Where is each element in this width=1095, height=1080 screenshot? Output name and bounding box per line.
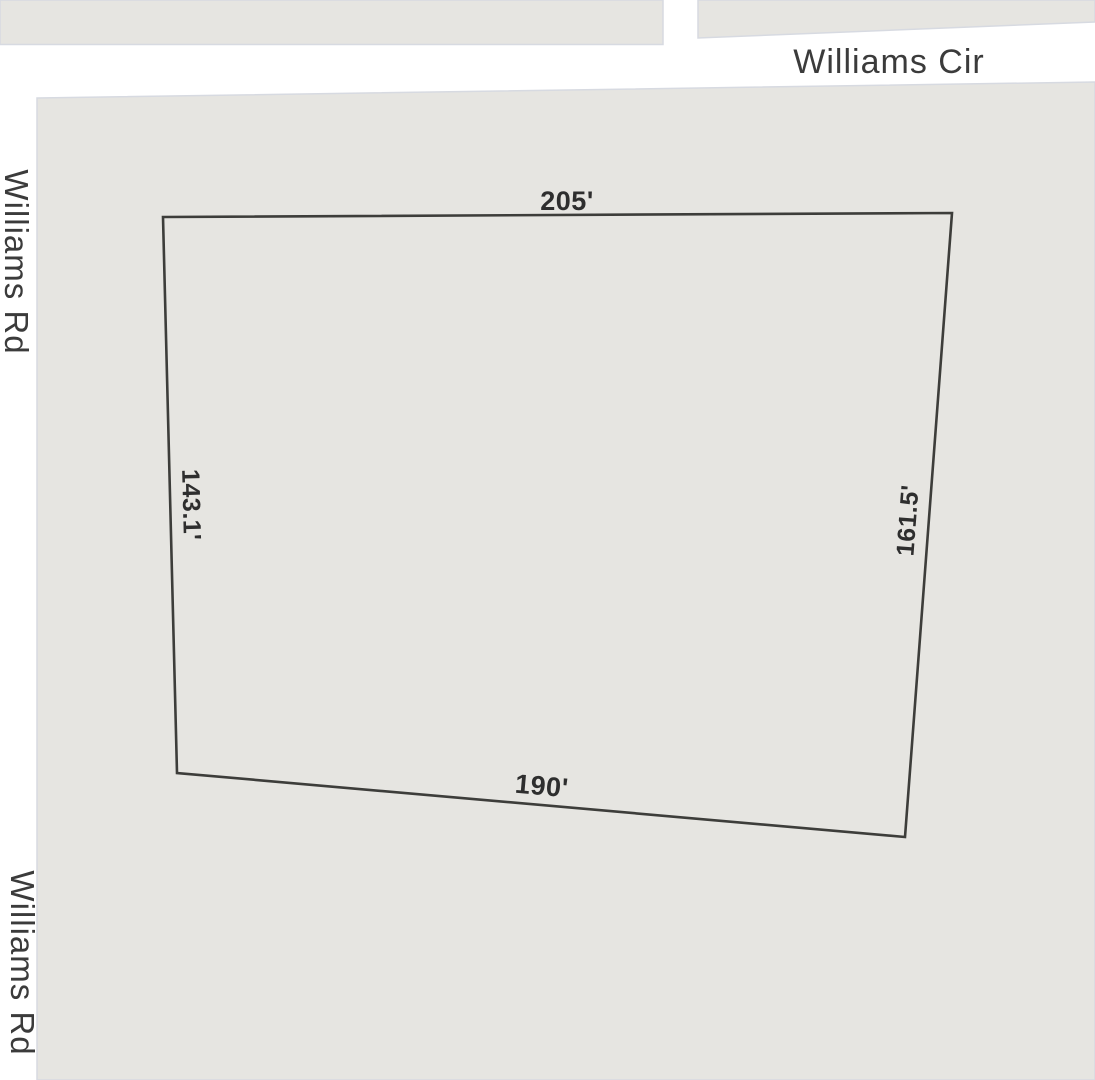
street-label-williams-cir: Williams Cir [793, 43, 984, 81]
parcel-map: Williams Cir Williams Rd Williams Rd 205… [0, 0, 1095, 1080]
map-canvas[interactable]: Williams Cir Williams Rd Williams Rd 205… [0, 0, 1095, 1080]
city-block-top-left [0, 0, 663, 45]
parcel-dimension-top: 205' [540, 186, 593, 216]
parcel-dimension-right: 161.5' [891, 484, 924, 557]
parcel-dimension-left: 143.1' [176, 469, 206, 541]
parcel-dimension-bottom: 190' [514, 769, 570, 804]
street-label-williams-rd-bottom: Williams Rd [4, 870, 41, 1055]
street-label-williams-rd-top: Williams Rd [0, 169, 35, 354]
city-block-main [37, 82, 1095, 1080]
